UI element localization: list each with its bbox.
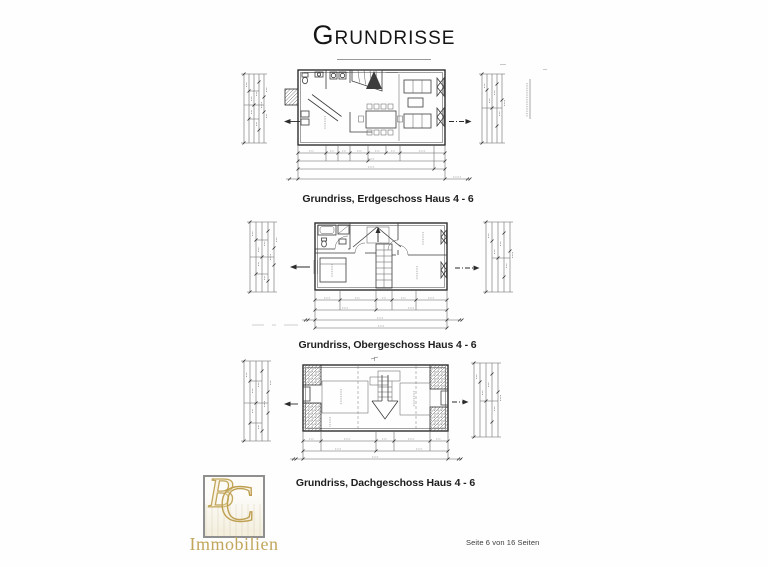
logo-monogram-c: C (220, 479, 255, 531)
document-page: Grundrisse (0, 0, 768, 567)
scan-speck (543, 69, 547, 70)
floorplan-dachgeschoss-drawing (238, 357, 533, 469)
floorplan-erdgeschoss-drawing (238, 61, 538, 187)
floorplan-obergeschoss-drawing (240, 214, 535, 336)
page-title: Grundrisse (0, 20, 768, 51)
company-logo: B C (203, 475, 265, 538)
figure-caption-dachgeschoss: Grundriss, Dachgeschoss Haus 4 - 6 (238, 477, 533, 489)
logo-company-name: Immobilien (188, 534, 280, 555)
page-number-text: Seite 6 von 16 Seiten (466, 538, 539, 547)
title-underline (337, 59, 431, 60)
figure-caption-obergeschoss: Grundriss, Obergeschoss Haus 4 - 6 (240, 339, 535, 351)
figure-caption-erdgeschoss: Grundriss, Erdgeschoss Haus 4 - 6 (238, 193, 538, 205)
